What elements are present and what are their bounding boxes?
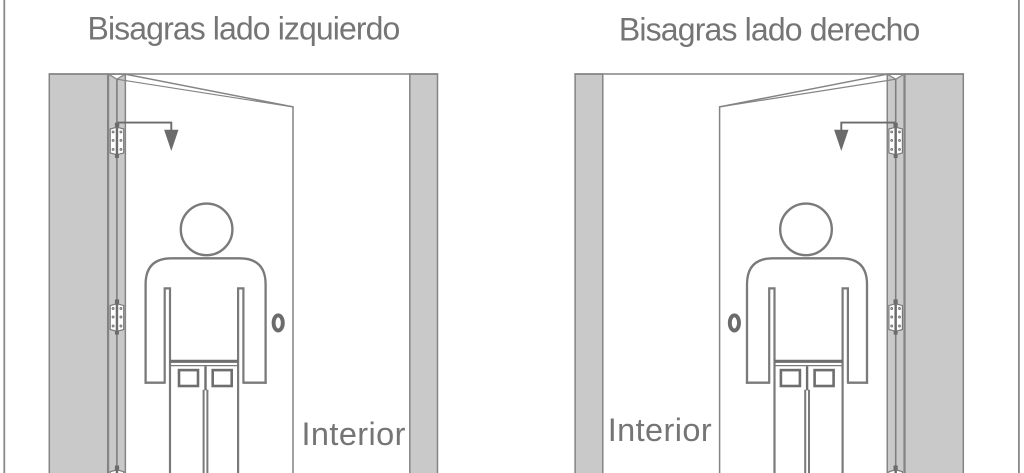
svg-text:Bisagras lado izquierdo: Bisagras lado izquierdo	[88, 10, 400, 46]
svg-text:Interior: Interior	[608, 412, 712, 448]
svg-text:Bisagras lado derecho: Bisagras lado derecho	[619, 11, 920, 47]
svg-text:Interior: Interior	[302, 416, 406, 452]
